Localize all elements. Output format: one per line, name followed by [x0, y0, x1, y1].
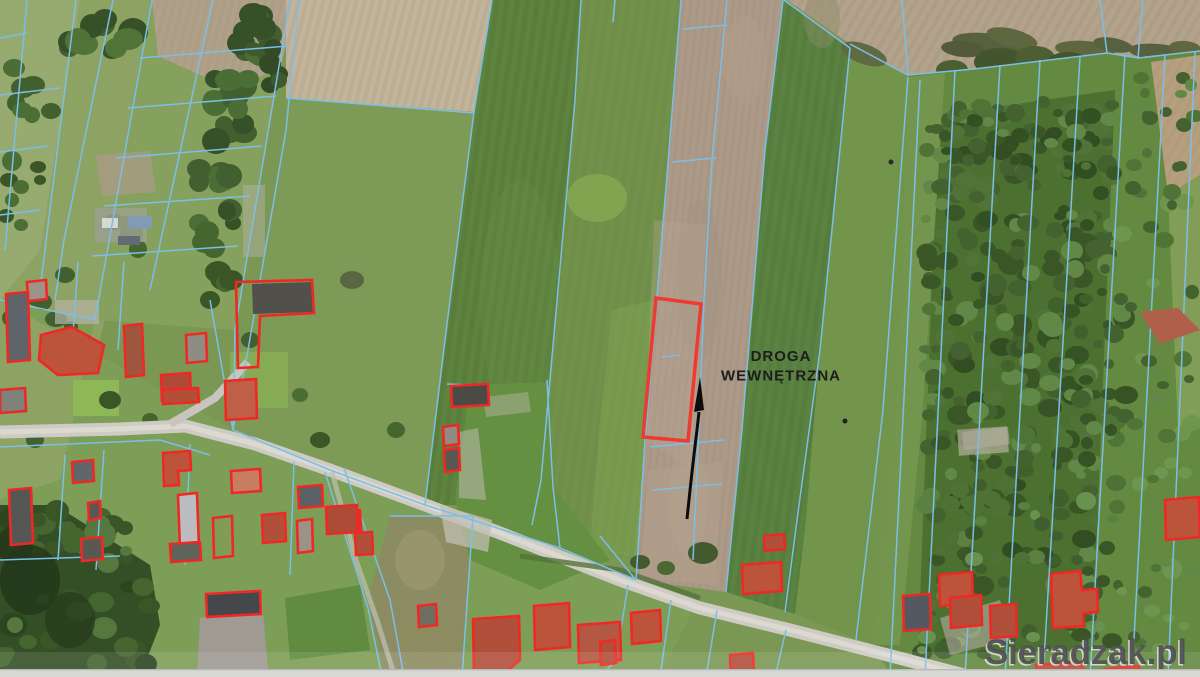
svg-text:Sieradzak.pl: Sieradzak.pl: [985, 633, 1187, 672]
svg-text:DROGA: DROGA: [751, 348, 812, 365]
svg-text:WEWNĘTRZNA: WEWNĘTRZNA: [721, 368, 841, 385]
